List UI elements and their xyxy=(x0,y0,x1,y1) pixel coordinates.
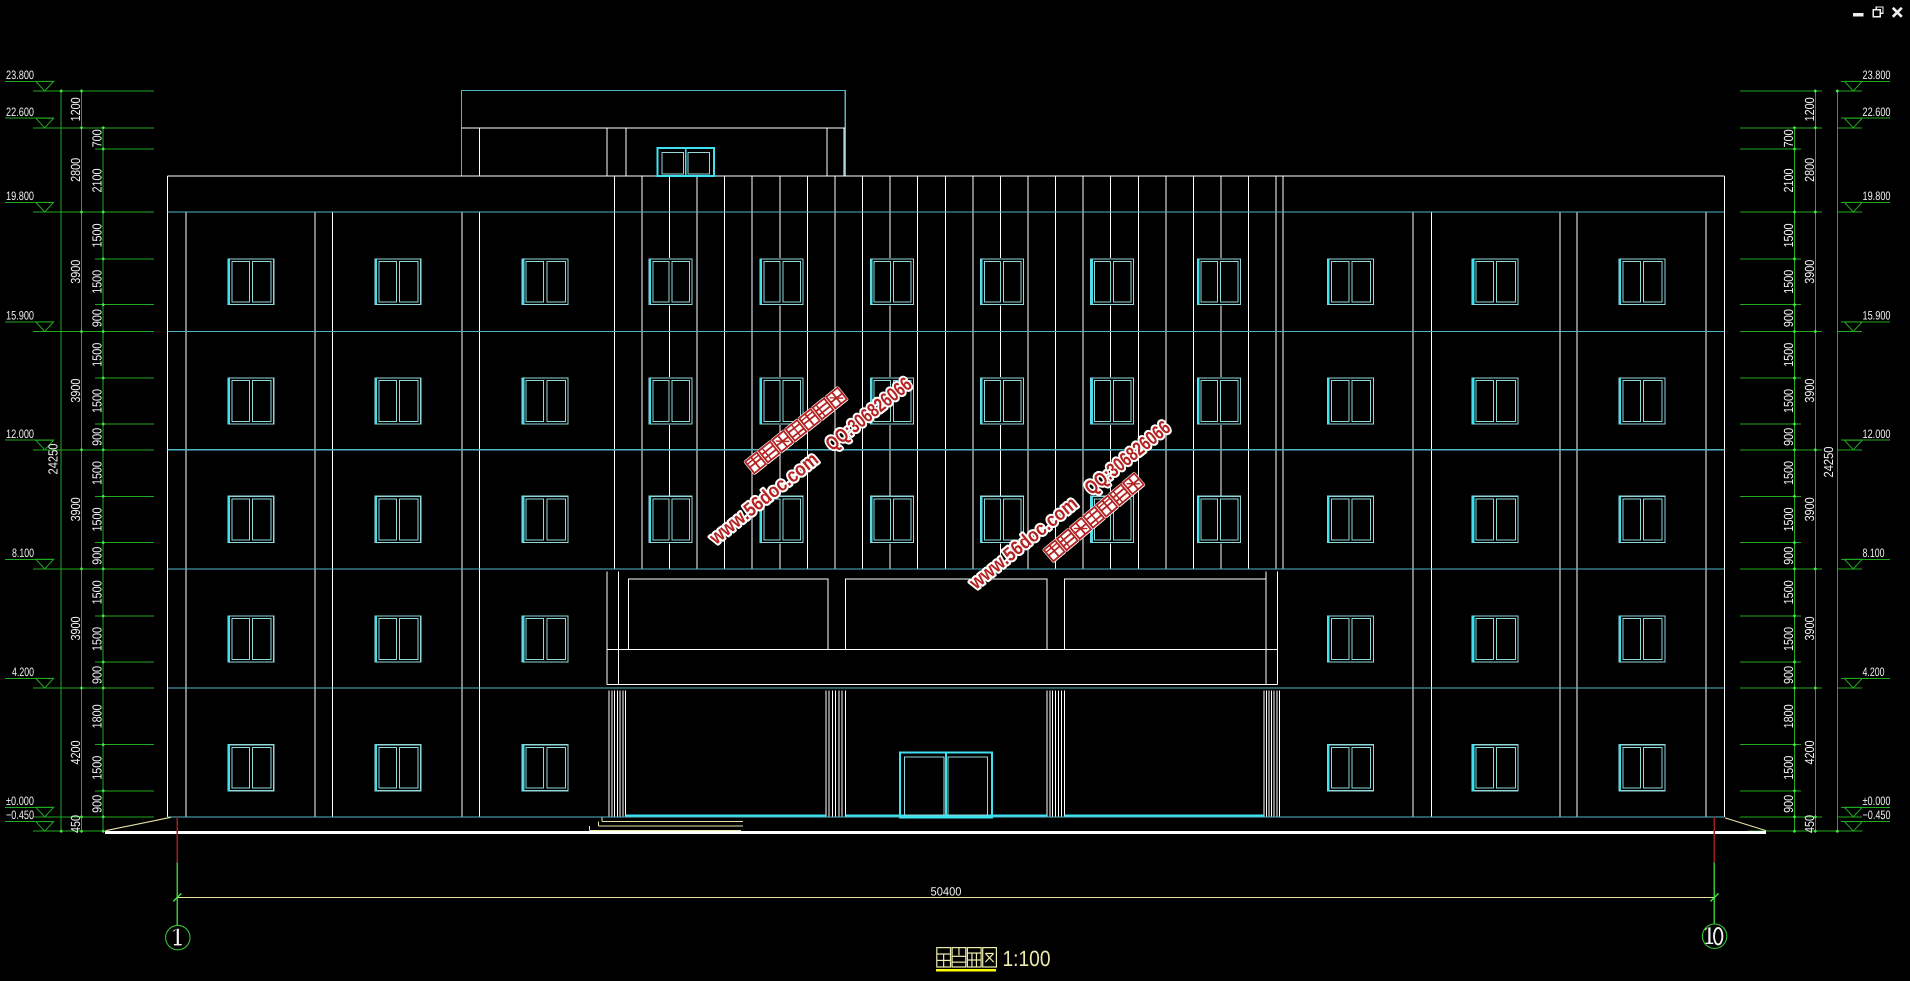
svg-text:3900: 3900 xyxy=(1802,497,1817,521)
svg-text:900: 900 xyxy=(90,547,105,565)
svg-text:900: 900 xyxy=(90,795,105,813)
svg-text:4.200: 4.200 xyxy=(12,665,34,679)
svg-text:15.900: 15.900 xyxy=(1863,309,1891,323)
svg-text:1500: 1500 xyxy=(90,389,105,413)
svg-text:2800: 2800 xyxy=(68,158,83,182)
svg-text:1500: 1500 xyxy=(90,627,105,651)
svg-text:900: 900 xyxy=(1781,547,1796,565)
svg-text:3900: 3900 xyxy=(1802,260,1817,284)
svg-text:450: 450 xyxy=(68,815,83,833)
svg-text:±0.000: ±0.000 xyxy=(1863,794,1891,808)
svg-text:1500: 1500 xyxy=(1781,343,1796,367)
svg-text:700: 700 xyxy=(1781,129,1796,147)
svg-text:1500: 1500 xyxy=(1781,627,1796,651)
svg-text:1500: 1500 xyxy=(90,223,105,247)
svg-text:900: 900 xyxy=(90,428,105,446)
svg-text:3900: 3900 xyxy=(1802,616,1817,640)
svg-text:1500: 1500 xyxy=(1781,507,1796,531)
svg-text:8.100: 8.100 xyxy=(12,546,34,560)
svg-text:900: 900 xyxy=(90,666,105,684)
svg-text:3900: 3900 xyxy=(68,260,83,284)
svg-text:1:100: 1:100 xyxy=(1003,946,1051,971)
svg-text:1500: 1500 xyxy=(1781,756,1796,780)
svg-text:±0.000: ±0.000 xyxy=(6,794,34,808)
svg-text:19.800: 19.800 xyxy=(6,189,34,203)
svg-text:22.600: 22.600 xyxy=(1863,105,1891,119)
svg-text:1200: 1200 xyxy=(1802,97,1817,121)
svg-text:3900: 3900 xyxy=(68,497,83,521)
svg-text:4.200: 4.200 xyxy=(1863,665,1885,679)
svg-text:450: 450 xyxy=(1802,815,1817,833)
svg-text:50400: 50400 xyxy=(931,884,962,898)
svg-text:1500: 1500 xyxy=(90,756,105,780)
svg-text:−0.450: −0.450 xyxy=(6,808,34,822)
svg-text:24250: 24250 xyxy=(46,444,61,475)
svg-text:3900: 3900 xyxy=(68,616,83,640)
svg-text:1500: 1500 xyxy=(90,461,105,485)
svg-text:3900: 3900 xyxy=(68,379,83,403)
svg-text:22.600: 22.600 xyxy=(6,105,34,119)
svg-text:1200: 1200 xyxy=(68,97,83,121)
svg-text:2100: 2100 xyxy=(90,169,105,193)
svg-text:1500: 1500 xyxy=(90,580,105,604)
svg-text:23.800: 23.800 xyxy=(1863,68,1891,82)
svg-text:1500: 1500 xyxy=(1781,580,1796,604)
svg-text:900: 900 xyxy=(90,309,105,327)
svg-text:23.800: 23.800 xyxy=(6,68,34,82)
svg-text:8.100: 8.100 xyxy=(1863,546,1885,560)
svg-text:12.000: 12.000 xyxy=(1863,427,1891,441)
svg-text:900: 900 xyxy=(1781,666,1796,684)
svg-text:900: 900 xyxy=(1781,309,1796,327)
svg-text:2100: 2100 xyxy=(1781,169,1796,193)
svg-text:900: 900 xyxy=(1781,795,1796,813)
svg-text:1800: 1800 xyxy=(1781,704,1796,728)
svg-text:1500: 1500 xyxy=(1781,270,1796,294)
svg-text:700: 700 xyxy=(90,129,105,147)
svg-text:1500: 1500 xyxy=(1781,389,1796,413)
svg-text:1500: 1500 xyxy=(90,507,105,531)
svg-text:1500: 1500 xyxy=(90,270,105,294)
svg-text:1800: 1800 xyxy=(90,704,105,728)
svg-text:12.000: 12.000 xyxy=(6,427,34,441)
svg-text:19.800: 19.800 xyxy=(1863,189,1891,203)
svg-text:2800: 2800 xyxy=(1802,158,1817,182)
svg-text:4200: 4200 xyxy=(1802,740,1817,764)
svg-text:4200: 4200 xyxy=(68,740,83,764)
svg-text:1500: 1500 xyxy=(1781,461,1796,485)
svg-text:15.900: 15.900 xyxy=(6,309,34,323)
svg-text:−0.450: −0.450 xyxy=(1863,808,1891,822)
svg-text:1500: 1500 xyxy=(90,343,105,367)
svg-text:3900: 3900 xyxy=(1802,379,1817,403)
svg-text:900: 900 xyxy=(1781,428,1796,446)
svg-text:24250: 24250 xyxy=(1821,447,1836,478)
svg-text:1500: 1500 xyxy=(1781,223,1796,247)
